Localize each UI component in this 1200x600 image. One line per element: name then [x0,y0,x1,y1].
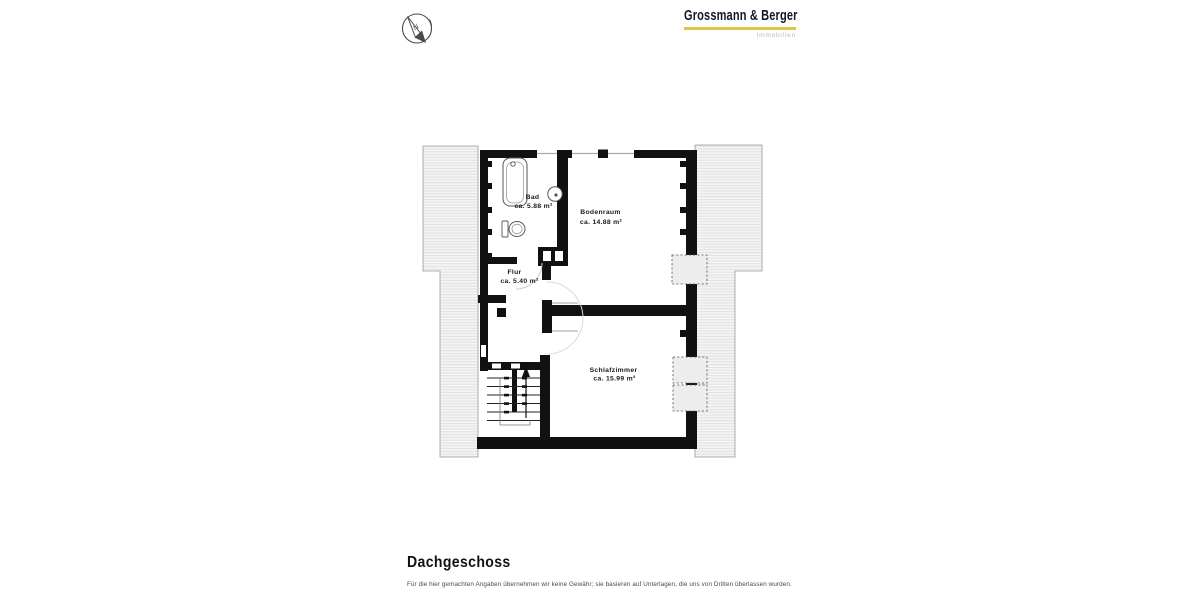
logo-title: Grossmann & Berger [684,8,769,24]
floor-plan: Bad ca. 5.88 m² Bodenraum ca. 14.88 m² F… [410,135,780,465]
floor-title: Dachgeschoss [407,554,511,572]
room-label-schlafzimmer: Schlafzimmer [590,367,638,374]
room-area-flur: ca. 5.40 m² [500,278,538,285]
wash-basin [548,187,562,201]
room-label-flur: Flur [507,269,521,276]
logo-subtitle: Immobilien [684,32,796,39]
room-area-bodenraum: ca. 14.88 m² [580,219,623,226]
disclaimer-text: Für die hier gemachten Angaben übernehme… [407,581,792,588]
toilet [502,221,525,237]
room-area-schlafzimmer: ca. 15.99 m² [593,376,636,383]
room-area-bad: ca. 5.88 m² [514,203,552,210]
bathtub [503,158,527,206]
compass-icon: N [398,10,438,52]
chimney [538,247,568,266]
logo-underline [684,27,796,30]
company-logo: Grossmann & Berger Immobilien [684,8,796,39]
room-label-bodenraum: Bodenraum [580,209,620,216]
window-slot [481,345,486,357]
page: N Grossmann & Berger Immobilien [0,0,1200,600]
stair-up-arrow [522,366,530,418]
room-label-bad: Bad [526,194,540,201]
roof-overhang-left [423,146,478,457]
